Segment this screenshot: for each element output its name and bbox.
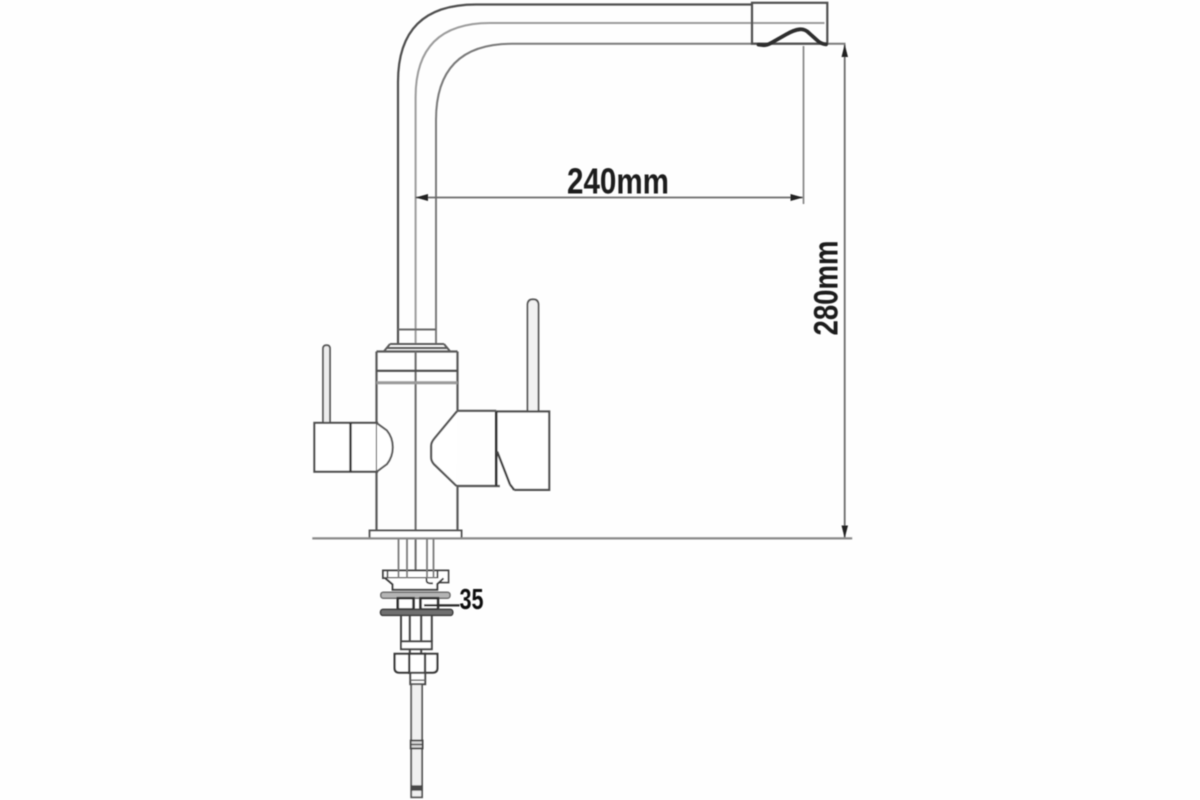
svg-text:280mm: 280mm [808, 241, 846, 336]
svg-text:240mm: 240mm [567, 161, 669, 202]
svg-text:35: 35 [460, 584, 484, 616]
